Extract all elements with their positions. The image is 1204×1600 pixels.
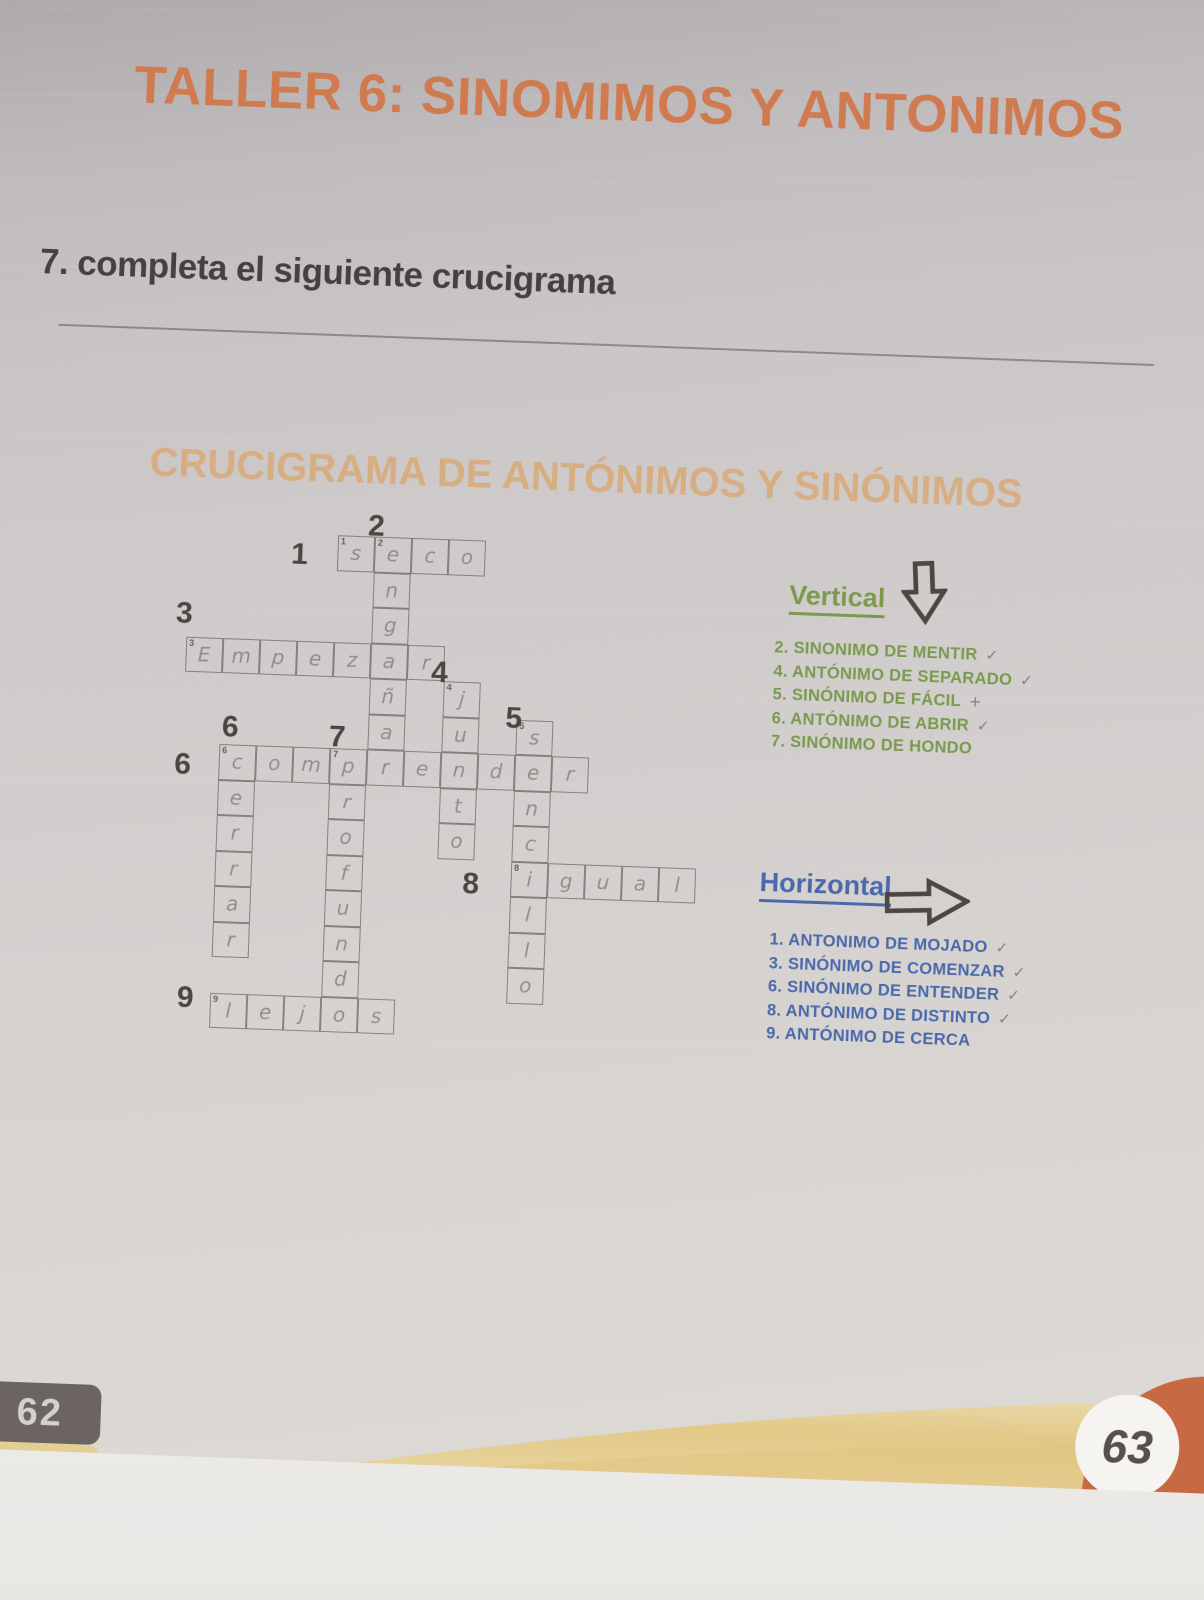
cell-letter: m <box>224 643 259 668</box>
crossword-cell: o <box>448 539 486 576</box>
crossword-cell: r <box>328 784 366 821</box>
crossword-cell: o <box>506 968 544 1005</box>
crossword-cell: r <box>216 815 254 852</box>
clue-number: 4. <box>773 662 792 681</box>
crossword-cell: E3 <box>185 636 223 673</box>
cell-letter: o <box>321 1001 357 1026</box>
crossword-cell: a <box>213 886 251 923</box>
crossword-cell: c <box>411 538 449 575</box>
crossword-cell: n <box>440 752 478 789</box>
cell-letter: z <box>335 647 370 671</box>
crossword-cell: i8 <box>510 861 548 898</box>
clue-number: 6. <box>771 709 790 728</box>
cell-letter: r <box>213 926 249 951</box>
cell-letter: c <box>412 543 447 568</box>
cell-letter: g <box>372 613 408 638</box>
crossword-cell: e <box>246 994 284 1031</box>
cell-number: 8 <box>514 862 519 872</box>
exercise-instruction: 7. completa el siguiente crucigrama <box>39 242 616 303</box>
crossword-cell: l <box>509 897 547 934</box>
crossword-cell: a <box>370 643 408 680</box>
clue-number: 8. <box>767 1001 786 1020</box>
crossword-cell: t <box>439 788 477 825</box>
clue-number: 6. <box>768 977 788 996</box>
pencil-check-icon: ✓ <box>1012 963 1026 981</box>
crossword-cell: m <box>292 747 330 784</box>
cell-letter: o <box>449 545 484 570</box>
cell-letter: d <box>323 966 358 991</box>
cell-letter: g <box>548 868 583 893</box>
cell-letter: r <box>552 761 589 787</box>
clue-number: 9. <box>766 1024 785 1043</box>
crossword-cell: o <box>320 996 358 1033</box>
crossword-cell: g <box>371 608 409 645</box>
cell-letter: e <box>218 784 255 810</box>
crossword-cell: u <box>584 864 622 901</box>
grid-number-label: 8 <box>462 867 480 902</box>
cell-letter: p <box>260 643 297 669</box>
cell-letter: d <box>478 759 513 784</box>
cell-letter: u <box>443 722 478 746</box>
grid-number-label: 5 <box>505 701 523 736</box>
crossword-cell: u <box>324 890 362 927</box>
grid-number-label: 6 <box>221 710 239 745</box>
crossword-cell: l <box>658 867 696 904</box>
right-arrow-icon <box>884 874 971 929</box>
cell-letter: a <box>622 870 658 895</box>
clue-text: ANTÓNIMO DE ABRIR <box>790 709 969 734</box>
crossword-cell: m <box>222 638 260 675</box>
cell-letter: ñ <box>370 684 405 709</box>
cell-letter: a <box>214 891 249 916</box>
page-number-left: 62 <box>16 1391 64 1436</box>
horizontal-clue-list: 1. ANTONIMO DE MOJADO✓3. SINÓNIMO DE COM… <box>766 928 1027 1055</box>
crossword-cell: o <box>326 819 364 856</box>
crossword-cell: z <box>333 642 371 679</box>
crossword-cell: a <box>367 714 405 751</box>
crossword-cell: d <box>477 753 515 790</box>
cell-letter: n <box>514 795 550 820</box>
pencil-check-icon: ✓ <box>1007 986 1021 1004</box>
cell-letter: n <box>441 757 477 783</box>
crossword-cell: n <box>373 572 411 609</box>
cell-letter: e <box>297 645 333 670</box>
pencil-check-icon: ✓ <box>977 716 991 734</box>
cell-letter: o <box>257 751 292 776</box>
pencil-check-icon: ✓ <box>1020 671 1034 689</box>
page-number-right: 63 <box>1101 1419 1154 1475</box>
decorative-wave <box>0 1317 1204 1494</box>
vertical-clues-section: Vertical 2. SINONIMO DE MENTIR✓4. ANTÓNI… <box>770 579 1036 763</box>
grid-number-label: 9 <box>176 980 194 1015</box>
cell-letter: l <box>509 938 544 962</box>
crossword-cell: l <box>507 932 545 969</box>
crossword-title: CRUCIGRAMA DE ANTÓNIMOS Y SINÓNIMOS <box>149 440 1023 517</box>
crossword-cell: c6 <box>218 744 256 781</box>
cell-letter: o <box>439 828 475 853</box>
cell-letter: l <box>510 901 547 927</box>
crossword-cell: r <box>212 921 250 958</box>
cell-number: 1 <box>341 536 346 546</box>
cell-letter: u <box>325 896 360 920</box>
crossword-cell: l9 <box>209 992 247 1029</box>
cell-letter: o <box>328 824 363 849</box>
grid-number-label: 2 <box>367 510 385 545</box>
crossword-cell: j <box>283 995 321 1032</box>
cell-letter: m <box>293 751 330 777</box>
crossword-cell: e <box>296 640 334 677</box>
page-title: TALLER 6: SINOMIMOS Y ANTONIMOS <box>133 54 1125 151</box>
crossword-cell: n <box>323 925 361 962</box>
crossword-cell: r <box>366 749 404 786</box>
clue-text: SINÓNIMO DE HONDO <box>790 733 973 758</box>
crossword-cell: e <box>217 779 255 816</box>
vertical-clue-list: 2. SINONIMO DE MENTIR✓4. ANTÓNIMO DE SEP… <box>770 636 1034 763</box>
crossword-cell: s <box>357 998 395 1035</box>
cell-letter: e <box>247 999 282 1024</box>
grid-number-label: 7 <box>328 720 346 755</box>
crossword-cell: p <box>259 639 297 676</box>
cell-letter: u <box>585 868 622 894</box>
grid-number-label: 3 <box>175 597 193 632</box>
crossword-cell: d <box>321 961 359 998</box>
crossword-cell: ñ <box>369 678 407 715</box>
crossword-cell: f <box>325 855 363 892</box>
grid-number-label: 4 <box>431 656 449 691</box>
cell-letter: e <box>404 755 441 782</box>
clue-text: SINÓNIMO DE FÁCIL <box>792 686 962 710</box>
grid-number-label: 6 <box>174 748 192 783</box>
clue-number: 5. <box>772 685 792 704</box>
clue-text: ANTONIMO DE MOJADO <box>788 931 988 956</box>
cell-letter: t <box>440 793 475 818</box>
clue-number: 1. <box>769 930 788 949</box>
cell-number: 6 <box>222 745 227 755</box>
cell-letter: a <box>368 718 405 744</box>
page-number-left-badge: 62 <box>0 1381 102 1445</box>
grid-number-label: 1 <box>291 537 309 572</box>
cell-letter: r <box>215 855 251 881</box>
cell-number: 3 <box>189 637 194 647</box>
cell-letter: n <box>374 577 409 602</box>
vertical-heading: Vertical <box>789 580 886 618</box>
cell-letter: c <box>512 830 549 857</box>
cell-letter: o <box>507 972 543 998</box>
clue-number: 7. <box>771 732 791 751</box>
crossword-cell: o <box>437 823 475 860</box>
cell-letter: r <box>217 821 252 845</box>
clue-text: ANTÓNIMO DE CERCA <box>784 1025 970 1050</box>
crossword-cell: u <box>441 717 479 754</box>
pencil-check-icon: ✓ <box>995 939 1009 957</box>
down-arrow-icon <box>900 559 948 626</box>
crossword-cell: a <box>621 865 659 902</box>
clue-text: SINONIMO DE MENTIR <box>793 639 978 664</box>
crossword-cell: r <box>551 756 589 793</box>
cell-letter: l <box>660 872 695 896</box>
cell-letter: n <box>324 930 360 956</box>
crossword-cell: e <box>514 755 552 792</box>
pencil-check-icon: ✓ <box>998 1009 1012 1027</box>
worksheet-page: TALLER 6: SINOMIMOS Y ANTONIMOS 7. compl… <box>0 0 1204 1494</box>
crossword-cell: j4 <box>443 681 481 718</box>
crossword-cell: n <box>513 790 551 827</box>
crossword-cell: c <box>511 826 549 863</box>
clue-text: SINÓNIMO DE ENTENDER <box>787 978 1000 1004</box>
cell-letter: f <box>326 859 363 885</box>
divider-line <box>59 324 1154 366</box>
horizontal-clues-section: Horizontal 1. ANTONIMO DE MOJADO✓3. SINÓ… <box>766 867 1029 1055</box>
cell-letter: e <box>515 760 550 785</box>
pencil-check-icon: ✓ <box>985 646 999 664</box>
crossword-cell: o <box>255 745 293 782</box>
clue-number: 3. <box>768 954 788 973</box>
cell-letter: s <box>359 1003 394 1027</box>
crossword-cell: r <box>214 850 252 887</box>
crossword-cell: g <box>547 863 585 900</box>
cell-number: 9 <box>213 993 218 1003</box>
cell-letter: j <box>284 999 321 1025</box>
cell-letter: a <box>371 647 408 674</box>
clue-number: 2. <box>774 638 794 657</box>
pencil-check-icon: + <box>969 692 983 710</box>
cell-letter: r <box>368 755 403 779</box>
horizontal-heading: Horizontal <box>759 867 892 907</box>
crossword-cell: e <box>403 751 441 788</box>
cell-letter: r <box>328 788 365 815</box>
